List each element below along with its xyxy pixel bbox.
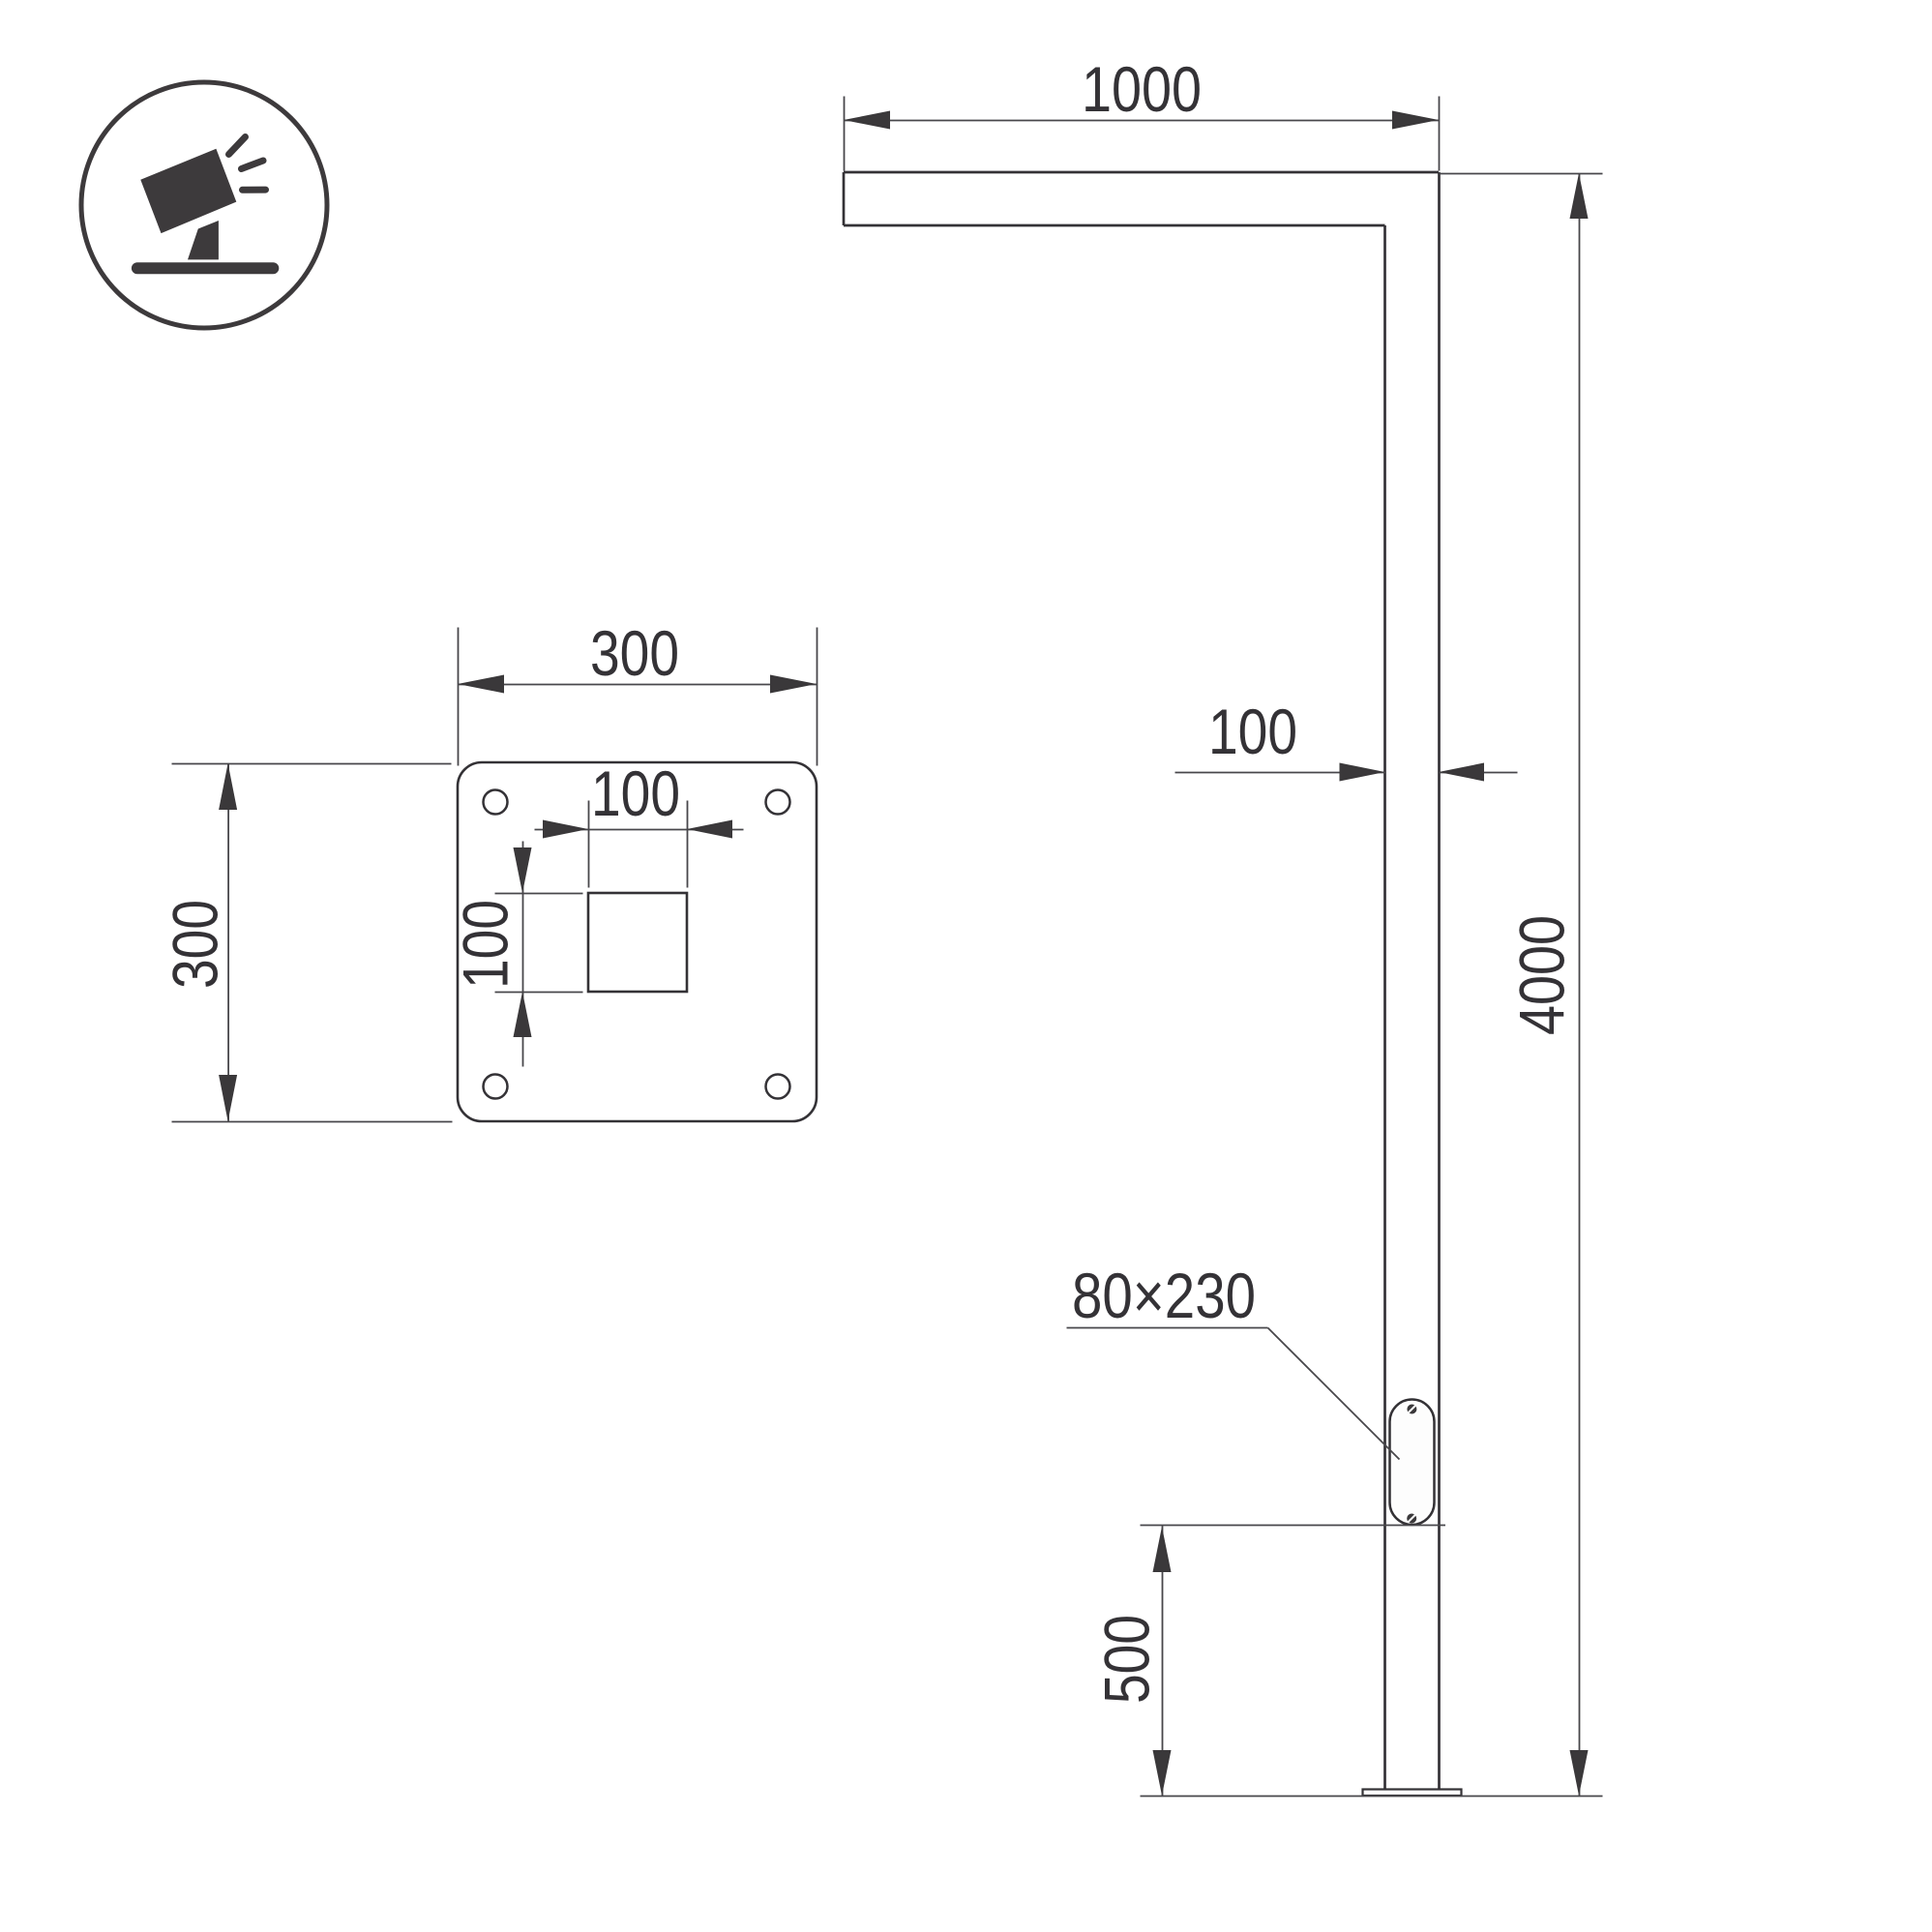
svg-text:4000: 4000: [1506, 915, 1578, 1035]
svg-text:100: 100: [591, 758, 680, 829]
svg-text:300: 300: [160, 900, 231, 989]
svg-text:300: 300: [590, 617, 679, 689]
svg-text:80×230: 80×230: [1072, 1260, 1256, 1331]
svg-text:500: 500: [1091, 1615, 1163, 1704]
svg-text:100: 100: [1208, 696, 1297, 767]
svg-text:1000: 1000: [1082, 53, 1202, 125]
svg-text:100: 100: [450, 900, 521, 989]
